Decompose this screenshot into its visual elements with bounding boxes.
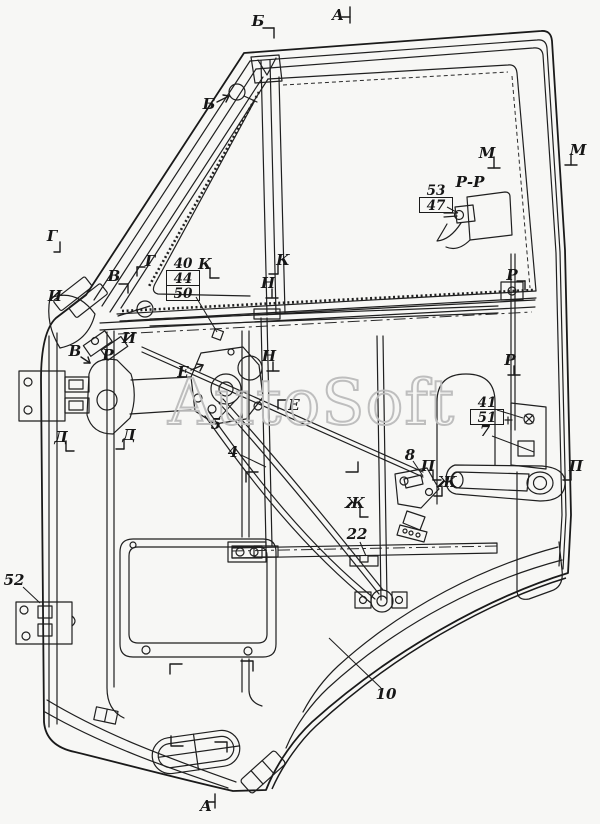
callout-10: 10 (376, 685, 397, 703)
mirror-arm-brackets (49, 271, 128, 367)
callout-22: 22 (346, 525, 368, 543)
door-assembly-drawing: БАБГВИВРИГККННММР-РРРЕЕДДЖЖППА5478221052 (0, 0, 600, 824)
leader-lines (23, 207, 534, 688)
section-letter-Г: Г (144, 252, 157, 270)
callout-4: 4 (228, 443, 238, 461)
section-pp-detail (437, 192, 512, 248)
section-letter-А: А (331, 6, 344, 24)
section-marks (170, 462, 358, 752)
section-letter-В: В (68, 342, 82, 360)
section-letter-Б: Б (202, 95, 216, 113)
section-letter-Е: Е (176, 363, 189, 381)
hinge-upper (19, 359, 191, 434)
inner-panel (120, 331, 498, 706)
section-letter-И: И (121, 329, 137, 347)
view-direction-tick (223, 95, 229, 96)
section-letter-Б: Б (251, 12, 265, 30)
section-letter-В: В (107, 267, 121, 285)
hinge-lower (16, 602, 75, 644)
section-letter-Г: Г (46, 227, 59, 245)
section-letter-Е: Е (287, 396, 300, 414)
section-letter-Р: Р (101, 346, 114, 364)
parts-diagram-canvas: БАБГВИВРИГККННММР-РРРЕЕДДЖЖППА5478221052… (0, 0, 600, 824)
section-letter-Н: Н (260, 274, 276, 292)
section-letter-А: А (199, 797, 212, 815)
view-direction-tick (197, 364, 203, 365)
callout-8: 8 (405, 446, 416, 464)
window-frame (100, 55, 536, 334)
section-letter-Ж: Ж (344, 494, 365, 512)
callout-52: 52 (4, 571, 25, 589)
callout-5: 5 (211, 415, 221, 433)
callout-7: 7 (480, 422, 491, 440)
window-regulator (142, 309, 423, 612)
section-letter-М: М (478, 144, 496, 162)
section-letter-Р-Р: Р-Р (455, 173, 486, 191)
section-letter-И: И (47, 287, 63, 305)
section-letter-Ж: Ж (436, 473, 457, 491)
section-letter-Н: Н (261, 347, 277, 365)
door-handle (437, 254, 565, 599)
